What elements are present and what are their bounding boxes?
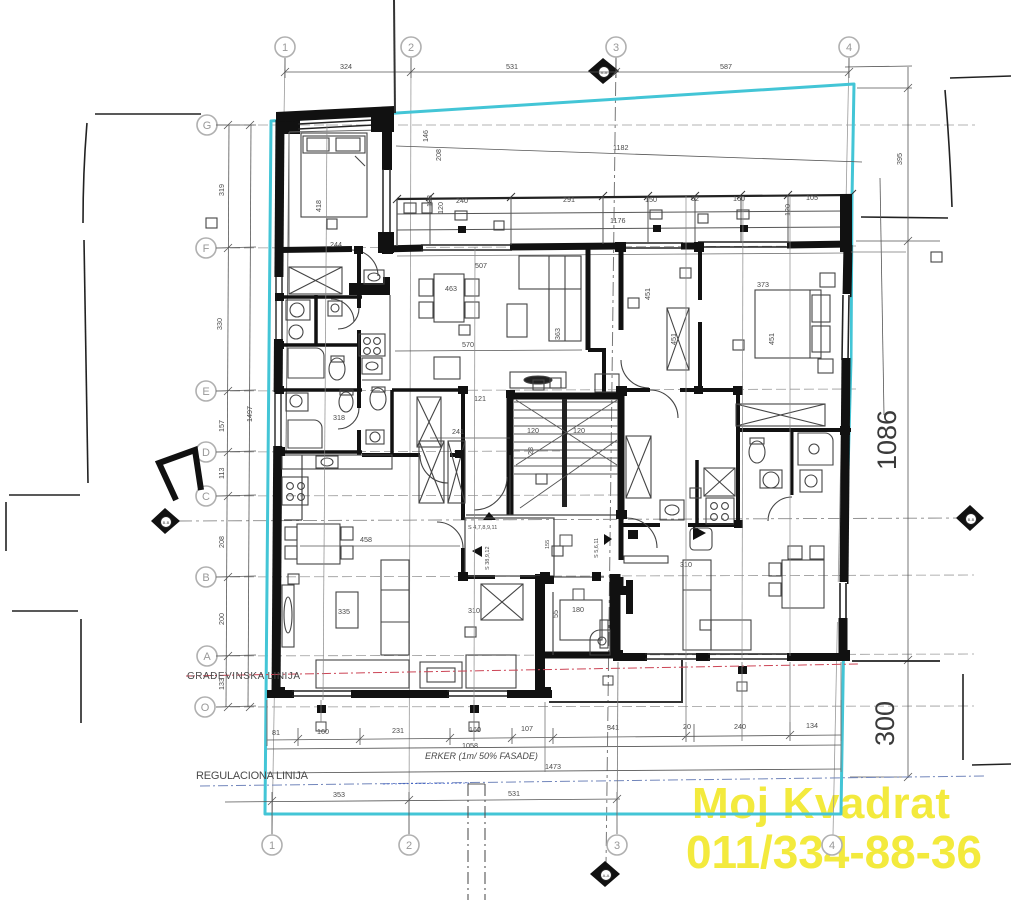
svg-text:C: C bbox=[202, 491, 210, 503]
svg-text:319: 319 bbox=[217, 184, 226, 196]
svg-text:28: 28 bbox=[526, 447, 535, 455]
svg-text:587: 587 bbox=[720, 62, 732, 71]
svg-text:E: E bbox=[202, 386, 209, 398]
svg-text:241: 241 bbox=[452, 427, 464, 436]
svg-text:3: 3 bbox=[614, 840, 620, 852]
svg-text:B-B: B-B bbox=[968, 517, 975, 522]
svg-text:1182: 1182 bbox=[613, 143, 628, 152]
svg-text:81: 81 bbox=[272, 728, 280, 737]
svg-text:2: 2 bbox=[408, 42, 414, 54]
svg-text:107: 107 bbox=[521, 724, 533, 733]
svg-text:S 4,7,8,9,11: S 4,7,8,9,11 bbox=[468, 525, 497, 531]
svg-text:105: 105 bbox=[806, 193, 818, 202]
svg-text:244: 244 bbox=[330, 240, 342, 249]
svg-text:4: 4 bbox=[846, 42, 852, 54]
svg-text:3: 3 bbox=[613, 42, 619, 54]
svg-text:335: 335 bbox=[338, 607, 350, 616]
svg-text:200: 200 bbox=[217, 613, 226, 625]
svg-text:157: 157 bbox=[217, 420, 226, 432]
svg-text:A: A bbox=[203, 651, 211, 663]
svg-text:A-A: A-A bbox=[603, 873, 610, 878]
svg-text:2: 2 bbox=[406, 840, 412, 852]
svg-text:363: 363 bbox=[553, 328, 562, 340]
svg-text:353: 353 bbox=[333, 790, 345, 799]
svg-text:ERKER (1m/ 50% FASADE): ERKER (1m/ 50% FASADE) bbox=[425, 751, 538, 761]
svg-text:113: 113 bbox=[217, 468, 226, 479]
svg-text:1497: 1497 bbox=[245, 406, 254, 422]
svg-text:120: 120 bbox=[573, 426, 585, 435]
svg-text:S 38,9,12: S 38,9,12 bbox=[485, 546, 491, 570]
svg-text:531: 531 bbox=[508, 789, 520, 798]
svg-text:451: 451 bbox=[669, 333, 678, 345]
svg-text:D: D bbox=[202, 447, 210, 459]
svg-text:146: 146 bbox=[421, 130, 430, 142]
svg-text:463: 463 bbox=[445, 284, 457, 293]
svg-text:231: 231 bbox=[392, 726, 404, 735]
svg-text:531: 531 bbox=[506, 62, 518, 71]
svg-text:120: 120 bbox=[527, 426, 539, 435]
svg-text:4: 4 bbox=[829, 840, 835, 852]
svg-text:240: 240 bbox=[734, 722, 746, 731]
svg-text:373: 373 bbox=[757, 280, 769, 289]
svg-text:134: 134 bbox=[806, 721, 818, 730]
svg-text:318: 318 bbox=[333, 413, 345, 422]
svg-text:120: 120 bbox=[436, 202, 445, 214]
svg-text:1473: 1473 bbox=[545, 762, 561, 771]
svg-text:330: 330 bbox=[215, 318, 224, 330]
svg-text:1: 1 bbox=[269, 840, 275, 852]
svg-text:REGULACIONA LINIJA: REGULACIONA LINIJA bbox=[196, 770, 309, 782]
svg-text:62: 62 bbox=[691, 194, 699, 203]
svg-text:240: 240 bbox=[456, 196, 468, 205]
svg-text:324: 324 bbox=[340, 62, 352, 71]
svg-text:F: F bbox=[203, 243, 210, 255]
svg-text:55: 55 bbox=[551, 610, 560, 618]
svg-text:180: 180 bbox=[572, 605, 584, 614]
svg-text:A-A: A-A bbox=[601, 70, 608, 75]
svg-text:1176: 1176 bbox=[610, 216, 625, 225]
svg-text:O: O bbox=[201, 702, 210, 714]
svg-text:20: 20 bbox=[683, 722, 691, 731]
svg-text:155: 155 bbox=[545, 540, 551, 549]
svg-text:395: 395 bbox=[895, 153, 904, 165]
svg-text:291: 291 bbox=[563, 195, 575, 204]
svg-text:1: 1 bbox=[282, 42, 288, 54]
svg-text:208: 208 bbox=[434, 149, 443, 161]
svg-text:121: 121 bbox=[474, 394, 486, 403]
svg-text:300: 300 bbox=[870, 701, 900, 746]
svg-text:GRAĐEVINSKA LINIJA: GRAĐEVINSKA LINIJA bbox=[187, 671, 300, 682]
svg-text:150: 150 bbox=[645, 195, 657, 204]
svg-text:507: 507 bbox=[475, 261, 487, 270]
svg-text:451: 451 bbox=[643, 288, 652, 300]
svg-text:208: 208 bbox=[217, 536, 226, 548]
svg-text:B: B bbox=[202, 572, 209, 584]
svg-text:418: 418 bbox=[314, 200, 323, 212]
svg-text:1058: 1058 bbox=[462, 741, 478, 750]
svg-text:570: 570 bbox=[462, 340, 474, 349]
svg-text:Moj Kvadrat: Moj Kvadrat bbox=[692, 779, 950, 828]
svg-text:341: 341 bbox=[607, 723, 619, 732]
svg-text:183: 183 bbox=[425, 195, 434, 207]
svg-text:G: G bbox=[203, 120, 212, 132]
svg-text:S 5,6,11: S 5,6,11 bbox=[594, 538, 600, 558]
svg-text:B-B: B-B bbox=[163, 520, 170, 525]
svg-text:120: 120 bbox=[783, 204, 792, 216]
svg-text:451: 451 bbox=[767, 333, 776, 345]
svg-text:458: 458 bbox=[360, 535, 372, 544]
svg-text:1086: 1086 bbox=[872, 410, 902, 470]
